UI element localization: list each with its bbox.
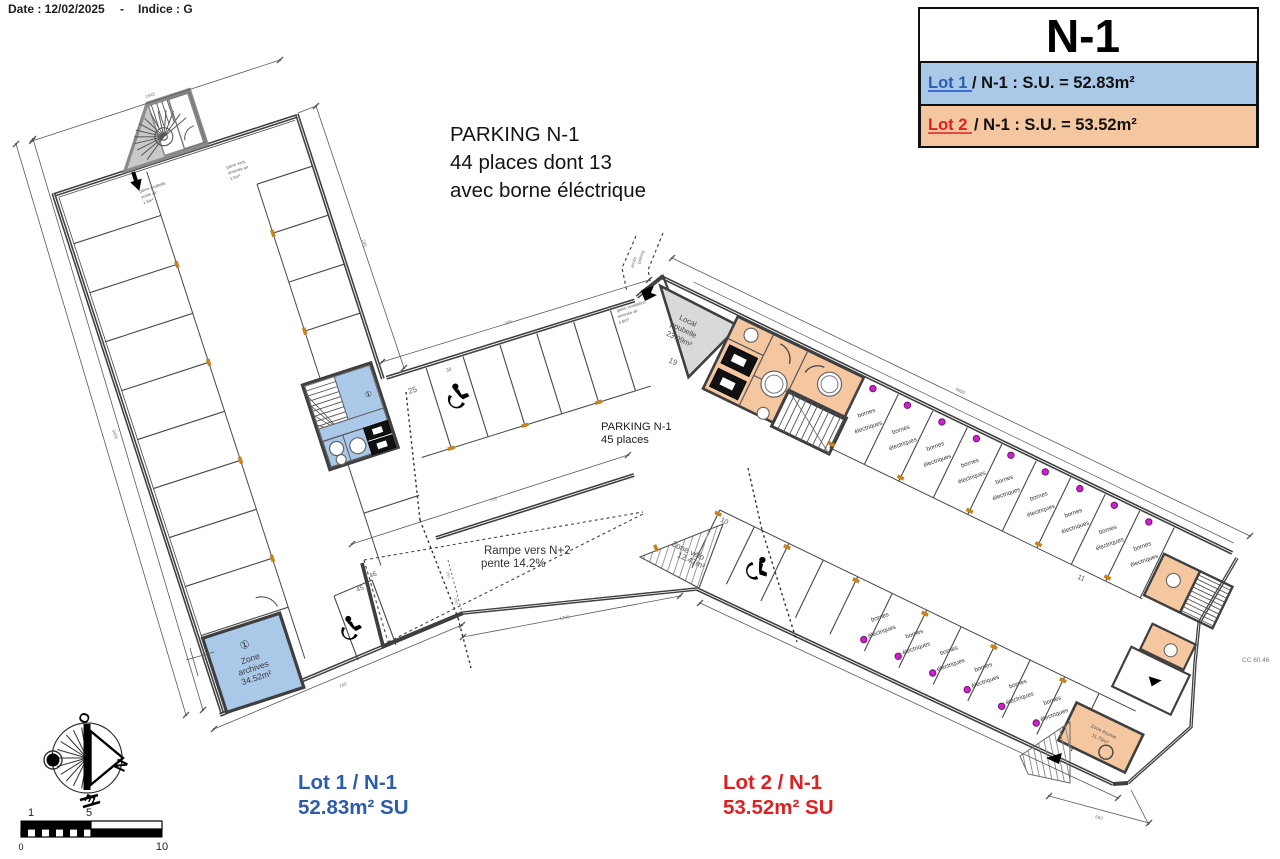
svg-text:45 places: 45 places <box>601 434 649 446</box>
svg-text:Lot 2: Lot 2 <box>928 116 967 134</box>
svg-text:53.52m² SU: 53.52m² SU <box>723 796 834 819</box>
svg-text:44 places dont 13: 44 places dont 13 <box>450 151 612 174</box>
svg-text:PARKING N-1: PARKING N-1 <box>450 123 579 146</box>
svg-text:Rampe vers N+2: Rampe vers N+2 <box>484 545 571 557</box>
svg-text:Lot 1 / N-1: Lot 1 / N-1 <box>298 771 397 794</box>
svg-text:avec borne éléctrique: avec borne éléctrique <box>450 179 646 202</box>
svg-text:CC 60.46: CC 60.46 <box>1242 657 1270 664</box>
svg-text:N-1: N-1 <box>1046 10 1120 62</box>
svg-text:Lot 1: Lot 1 <box>928 74 967 92</box>
svg-text:10: 10 <box>156 841 168 853</box>
svg-text:Lot 2 / N-1: Lot 2 / N-1 <box>723 771 822 794</box>
svg-text:Date : 12/02/2025: Date : 12/02/2025 <box>8 2 105 16</box>
svg-text:0: 0 <box>18 842 23 852</box>
svg-text:Indice : G: Indice : G <box>138 2 193 16</box>
svg-text:-: - <box>120 2 124 16</box>
svg-text:/ N-1 : S.U. = 52.83m²: / N-1 : S.U. = 52.83m² <box>972 74 1135 92</box>
svg-text:pente 14.2%: pente 14.2% <box>481 558 546 570</box>
svg-text:5: 5 <box>86 807 92 819</box>
svg-text:PARKING N-1: PARKING N-1 <box>601 421 672 433</box>
svg-text:/ N-1 : S.U. = 53.52m²: / N-1 : S.U. = 53.52m² <box>974 116 1137 134</box>
svg-text:1: 1 <box>28 807 34 819</box>
svg-text:52.83m² SU: 52.83m² SU <box>298 796 409 819</box>
